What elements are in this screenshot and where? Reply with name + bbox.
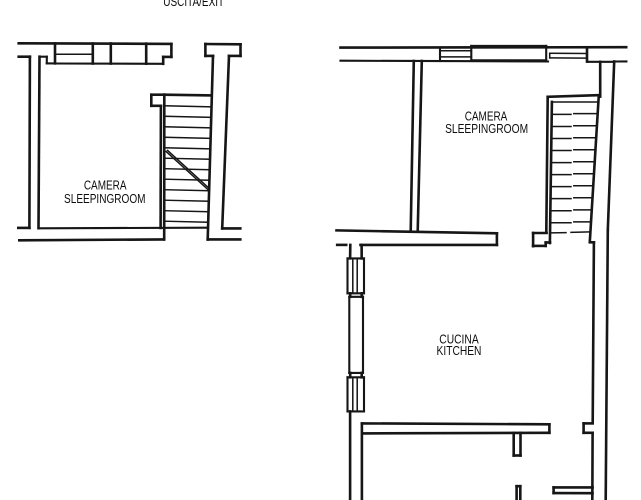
svg-text:SLEEPINGROOM: SLEEPINGROOM — [445, 121, 528, 136]
svg-text:USCITA/EXIT: USCITA/EXIT — [163, 0, 224, 9]
svg-text:SLEEPINGROOM: SLEEPINGROOM — [64, 191, 146, 206]
svg-text:KITCHEN: KITCHEN — [437, 343, 482, 358]
